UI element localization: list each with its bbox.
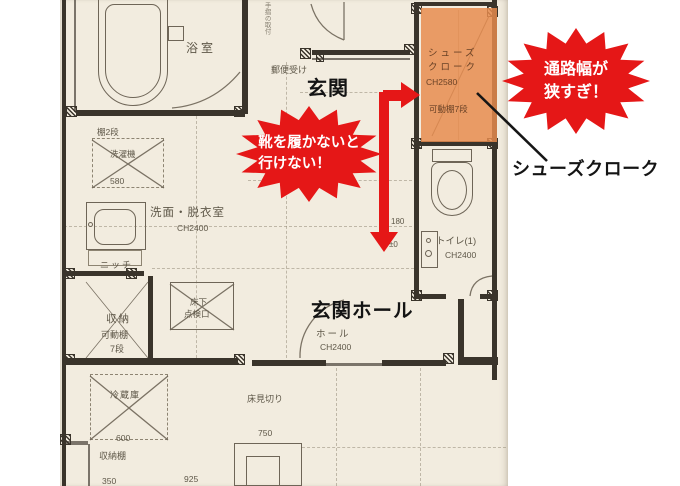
callout-layer <box>0 0 680 486</box>
callout-leader-line <box>477 93 547 161</box>
annotated-floorplan: 浴室 手摺の取付 郵便受け 玄関 棚2段 洗濯機 580 洗面・脱衣室 CH24… <box>0 0 680 486</box>
callout-label-shoes-cloak: シューズクローク <box>512 160 659 180</box>
